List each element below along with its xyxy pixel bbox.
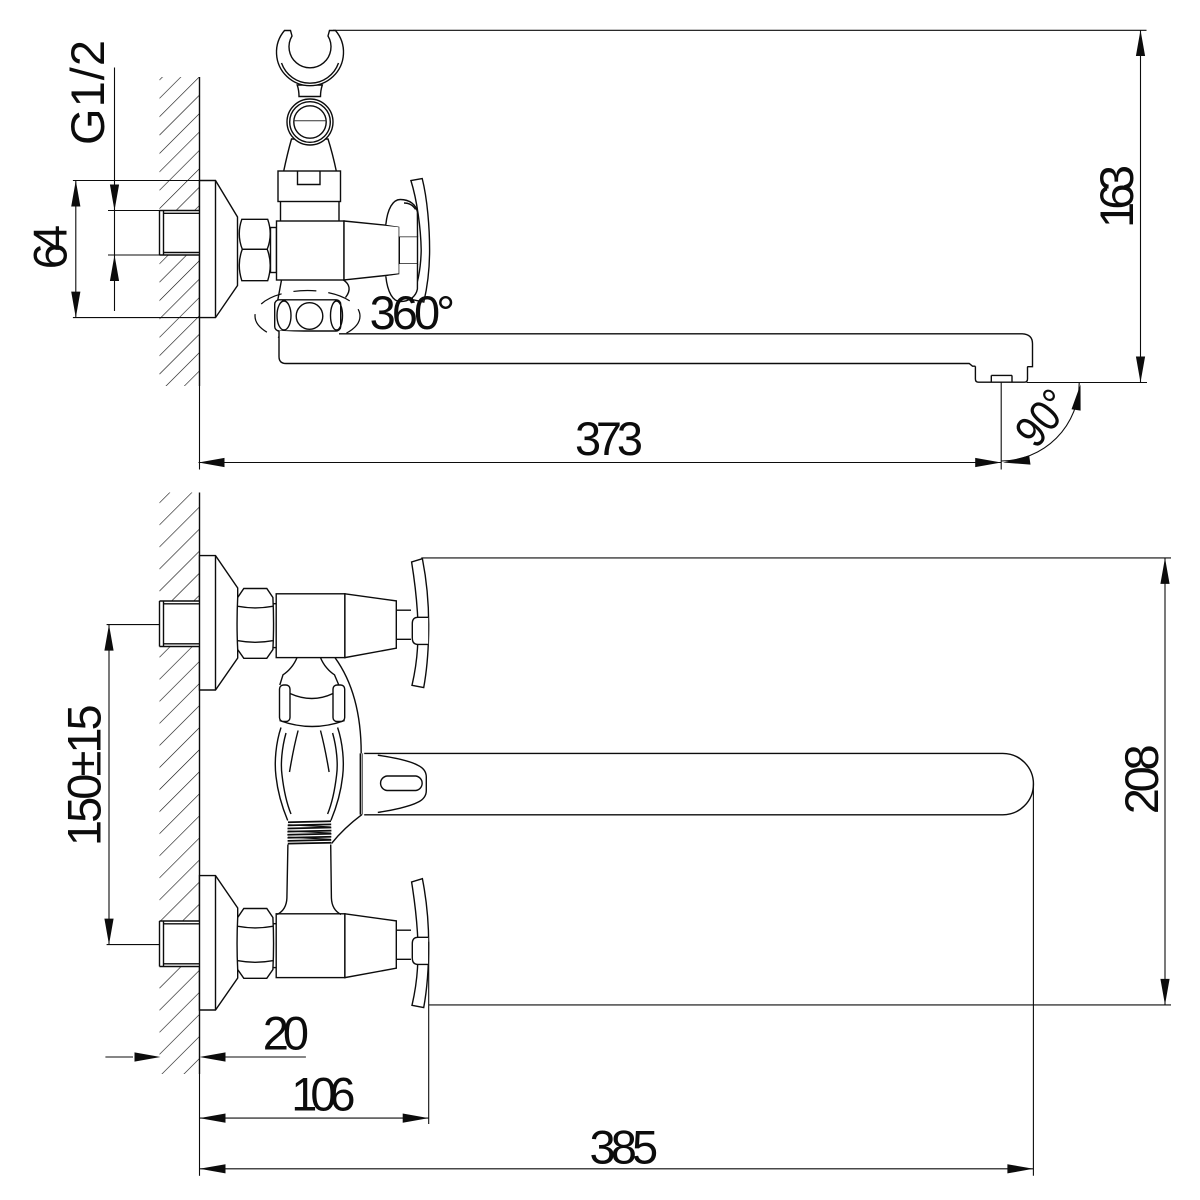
svg-text:64: 64 xyxy=(24,225,77,269)
svg-text:106: 106 xyxy=(291,1068,355,1121)
svg-text:20: 20 xyxy=(263,1006,309,1059)
svg-text:150±15: 150±15 xyxy=(57,704,110,846)
svg-text:385: 385 xyxy=(590,1120,659,1173)
svg-text:208: 208 xyxy=(1115,744,1168,814)
svg-text:G1/2: G1/2 xyxy=(61,40,114,145)
svg-text:163: 163 xyxy=(1090,165,1143,228)
svg-text:360°: 360° xyxy=(370,286,455,339)
svg-text:373: 373 xyxy=(575,412,643,465)
